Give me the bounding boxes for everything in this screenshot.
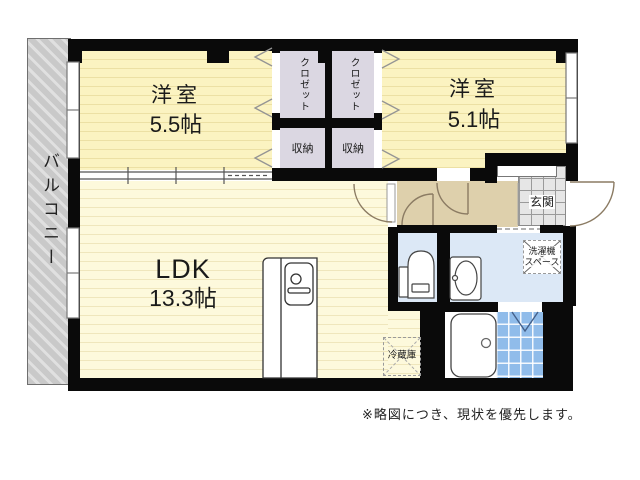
wall-below-closets (272, 168, 398, 181)
fridge-label: 冷蔵庫 (381, 350, 423, 361)
wall-bathroom-right (543, 302, 573, 384)
wall-entrance-stub (485, 153, 497, 183)
toilet-room-floor (398, 233, 437, 302)
pillar (556, 39, 578, 63)
wall-washroom-bath-divider-a (441, 302, 498, 312)
balcony-label: バルコニー (37, 152, 62, 272)
front-door-arc (570, 182, 614, 226)
bedroom-51-size: 5.1帖 (394, 107, 554, 132)
bedroom-55-name: 洋室 (96, 84, 256, 108)
closet-right: クロゼット (332, 51, 374, 118)
washer-label-line2: スペース (525, 257, 560, 267)
wall-washroom-top-b (540, 225, 563, 233)
washer-space-label: 洗濯機 スペース (520, 246, 564, 268)
closet-right-opening (374, 53, 382, 113)
storage-right: 収納 (332, 128, 374, 168)
pillar (207, 39, 229, 63)
wall-closet-row-divider (272, 118, 382, 128)
wall-entrance-top (485, 153, 566, 166)
closet-left-opening (272, 53, 280, 113)
storage-left: 収納 (280, 128, 325, 168)
wall-toilet-top (398, 225, 450, 233)
entrance-label: 玄関 (529, 195, 555, 209)
wall-washroom-right (563, 226, 576, 306)
ldk-name: LDK (103, 254, 263, 285)
balcony-area: バルコニー (27, 38, 71, 385)
bathtub-fixture (451, 314, 496, 377)
wall-washroom-top-a (450, 225, 497, 233)
closet-right-label: クロゼット (348, 57, 358, 112)
floor-plan: バルコニー クロゼット クロゼット 収納 収納 (0, 0, 640, 480)
bathroom-tile-floor (496, 312, 543, 378)
storage-right-opening (374, 130, 382, 168)
ldk-door-opening (388, 181, 397, 227)
wall-closet-middle (325, 45, 332, 170)
storage-left-label: 収納 (292, 140, 314, 156)
hallway-floor (397, 181, 518, 227)
wall-washroom-bath-divider-b (542, 302, 563, 312)
bedroom-55-size: 5.5帖 (96, 112, 256, 137)
disclaimer-note: ※略図につき、現状を優先します。 (362, 404, 632, 423)
pillar (68, 39, 82, 63)
entrance-label-box: 玄関 (518, 196, 566, 210)
wall-kitchen-stub (263, 338, 281, 378)
ldk-size: 13.3帖 (103, 285, 263, 311)
washer-label-line1: 洗濯機 (528, 246, 555, 256)
wall-bath-left (420, 311, 445, 378)
bedroom-55-floor (80, 51, 272, 170)
closet-left-label: クロゼット (298, 57, 308, 112)
wall-bottom-exterior (68, 378, 573, 391)
storage-left-opening (272, 130, 280, 168)
wall-bedroom51-bottom-a (398, 168, 437, 181)
wall-ldk-toilet-divider (388, 225, 398, 302)
wall-toilet-bottom (388, 302, 441, 311)
storage-right-label: 収納 (342, 140, 364, 156)
wall-toilet-right (437, 227, 450, 302)
wall-left-exterior (68, 39, 80, 385)
bedroom-51-name: 洋室 (394, 78, 554, 102)
